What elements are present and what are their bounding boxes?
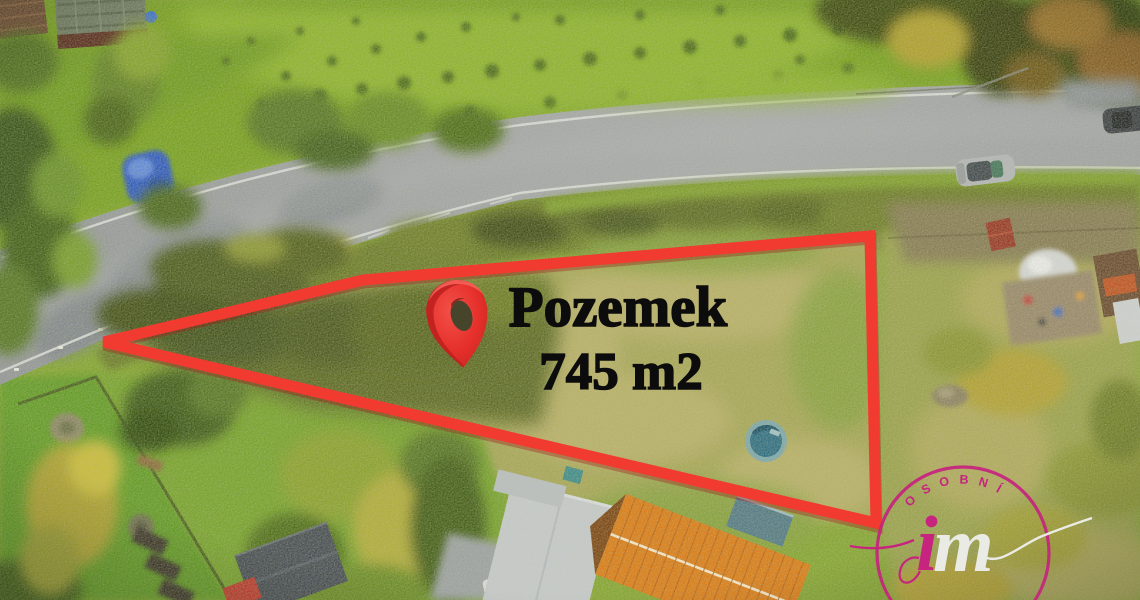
svg-text:745 m2: 745 m2 xyxy=(539,343,702,401)
svg-text:Pozemek: Pozemek xyxy=(509,276,728,339)
svg-text:m: m xyxy=(933,501,994,588)
